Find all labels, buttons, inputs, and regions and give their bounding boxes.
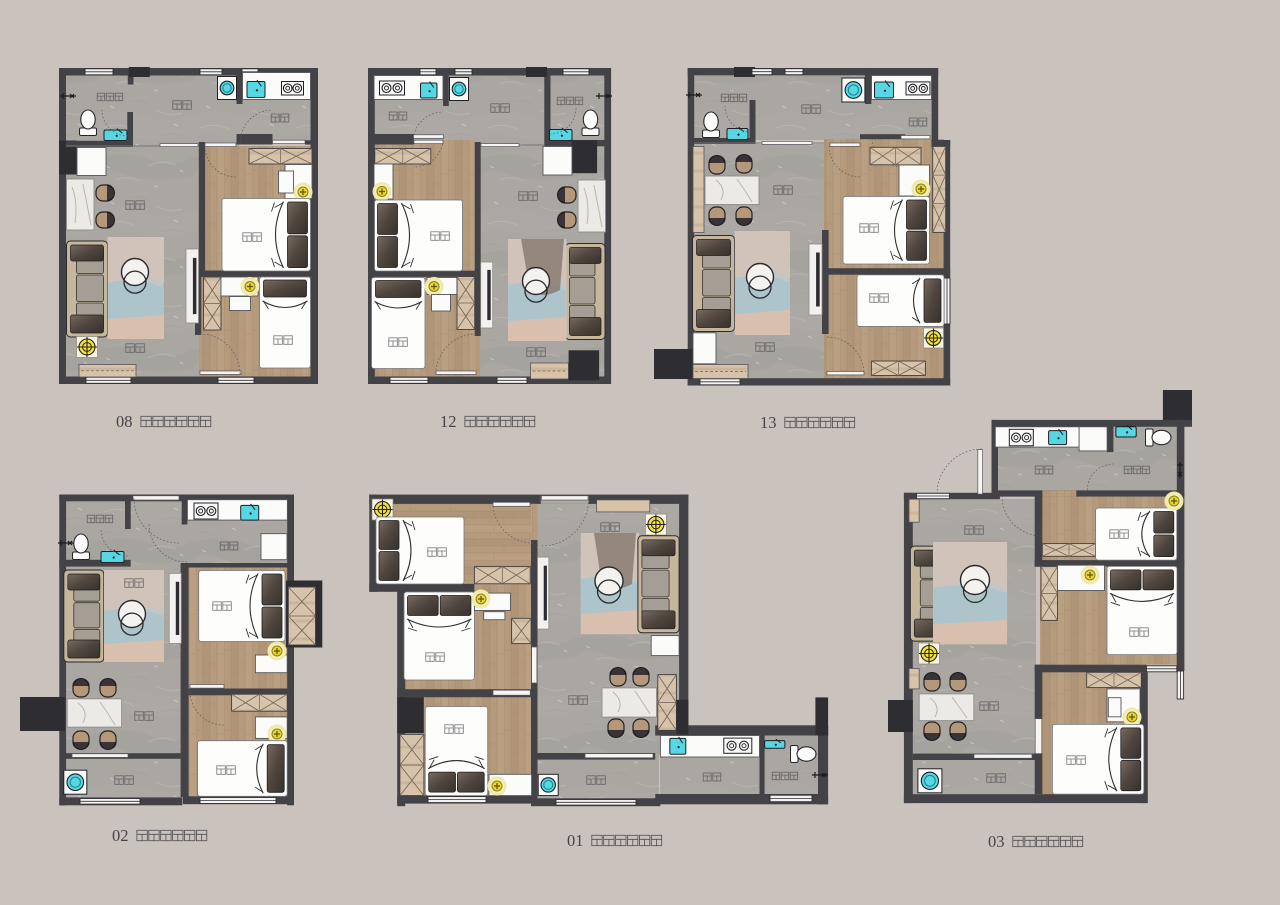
- svg-text:02: 02: [112, 826, 129, 845]
- svg-text:12: 12: [440, 412, 457, 431]
- svg-text:01: 01: [567, 831, 584, 850]
- svg-text:08: 08: [116, 412, 133, 431]
- svg-text:13: 13: [760, 413, 777, 432]
- svg-text:03: 03: [988, 832, 1005, 851]
